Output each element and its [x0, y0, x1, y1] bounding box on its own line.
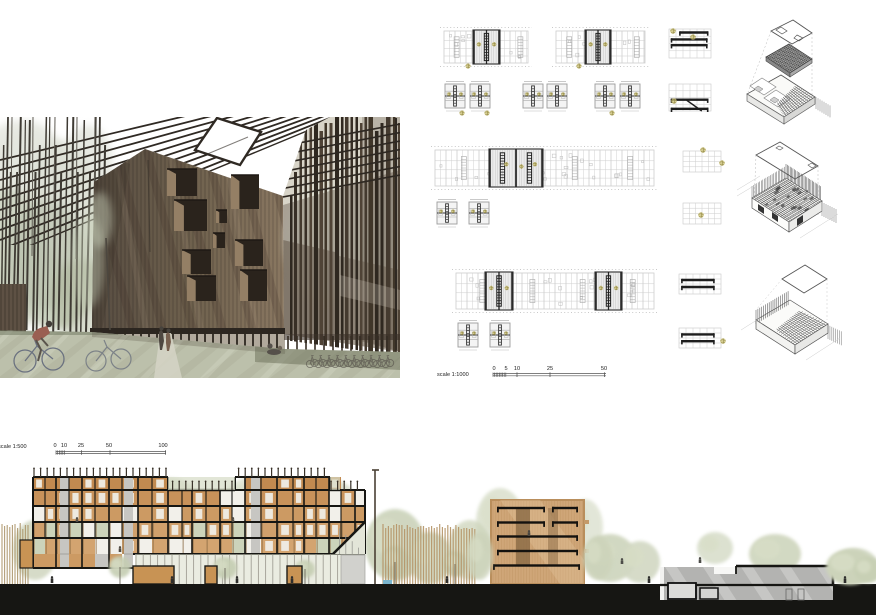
svg-text:25: 25	[78, 443, 84, 449]
svg-text:scale 1:500: scale 1:500	[0, 444, 27, 450]
svg-text:25: 25	[547, 366, 553, 372]
svg-text:100: 100	[158, 443, 167, 449]
svg-text:10: 10	[514, 366, 520, 372]
svg-text:50: 50	[106, 443, 112, 449]
svg-text:50: 50	[601, 366, 607, 372]
svg-text:5: 5	[504, 366, 507, 372]
svg-text:0: 0	[53, 443, 56, 449]
svg-text:scale 1:1000: scale 1:1000	[437, 372, 469, 378]
svg-text:10: 10	[61, 443, 67, 449]
svg-text:0: 0	[492, 366, 495, 372]
